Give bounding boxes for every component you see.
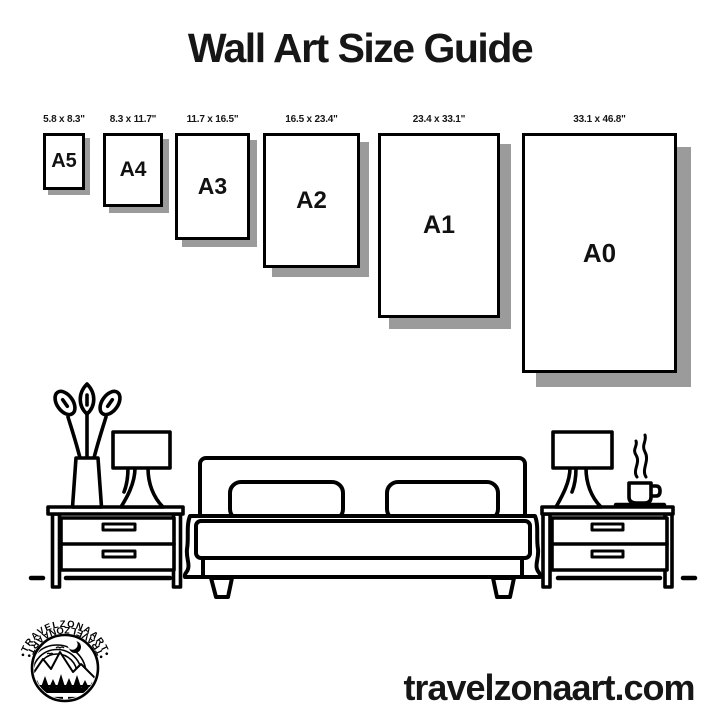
paper-size-a5: 5.8 x 8.3" A5	[43, 113, 85, 190]
paper-size-a4: 8.3 x 11.7" A4	[103, 113, 163, 207]
website-url: travelzonaart.com	[389, 667, 709, 709]
paper-sheet-a1: A1	[378, 133, 500, 318]
drawer-handle	[592, 551, 623, 557]
bed-leg-right	[493, 578, 514, 597]
drawer-handle	[103, 524, 135, 530]
size-name-label: A4	[120, 158, 147, 182]
bed	[185, 458, 540, 597]
nightstand-leg	[53, 514, 60, 587]
size-dimensions-label: 33.1 x 46.8"	[573, 113, 625, 126]
coffee-cup	[616, 435, 664, 505]
size-dimensions-label: 8.3 x 11.7"	[110, 113, 156, 126]
cup-body	[629, 483, 651, 503]
drawer-handle	[592, 524, 623, 530]
wall-art-size-guide-poster: Wall Art Size Guide 5.8 x 8.3" A5 8.3 x …	[0, 0, 720, 720]
size-name-label: A5	[51, 150, 77, 173]
lamp-shade	[113, 432, 170, 468]
size-dimensions-label: 5.8 x 8.3"	[43, 113, 85, 126]
paper-sheet-a2: A2	[263, 133, 360, 268]
moon-crescent-cut	[67, 639, 77, 649]
paper-size-a1: 23.4 x 33.1" A1	[378, 113, 500, 318]
bed-leg-left	[211, 578, 232, 597]
steam-icon	[644, 435, 647, 477]
nightstand-left	[48, 507, 183, 587]
nightstand-right	[542, 507, 673, 587]
lamp-base	[556, 468, 601, 507]
table-lamp-right	[553, 432, 612, 507]
leaf-icon	[96, 388, 124, 418]
paper-sheet-a5: A5	[43, 133, 85, 190]
vase	[73, 458, 102, 507]
brand-logo-stamp: •TRAVELZONAART• •TRAVELZONAART•	[12, 615, 118, 720]
size-dimensions-label: 11.7 x 16.5"	[187, 113, 239, 126]
steam-icon	[635, 441, 638, 477]
size-name-label: A2	[296, 187, 327, 215]
lamp-stem-line	[124, 468, 128, 492]
page-title: Wall Art Size Guide	[0, 24, 720, 72]
bed-base	[203, 558, 522, 577]
size-name-label: A0	[583, 238, 616, 269]
bedroom-scene-illustration	[0, 375, 720, 612]
paper-sheet-a3: A3	[175, 133, 250, 240]
paper-sheet-a4: A4	[103, 133, 163, 207]
paper-size-a0: 33.1 x 46.8" A0	[522, 113, 677, 373]
table-lamp-left	[113, 432, 170, 507]
nightstand-leg	[543, 514, 550, 587]
leaf-icon	[51, 388, 79, 418]
paper-size-a2: 16.5 x 23.4" A2	[263, 113, 360, 268]
paper-size-a3: 11.7 x 16.5" A3	[175, 113, 250, 240]
plant-stem	[94, 417, 106, 458]
plant-stem	[68, 417, 80, 458]
size-name-label: A1	[423, 211, 455, 240]
size-name-label: A3	[198, 173, 227, 200]
lamp-shade	[553, 432, 612, 468]
drawer-handle	[103, 551, 135, 557]
blanket-fold	[196, 521, 530, 558]
paper-sheet-a0: A0	[522, 133, 677, 373]
size-dimensions-label: 23.4 x 33.1"	[413, 113, 465, 126]
size-dimensions-label: 16.5 x 23.4"	[285, 113, 337, 126]
